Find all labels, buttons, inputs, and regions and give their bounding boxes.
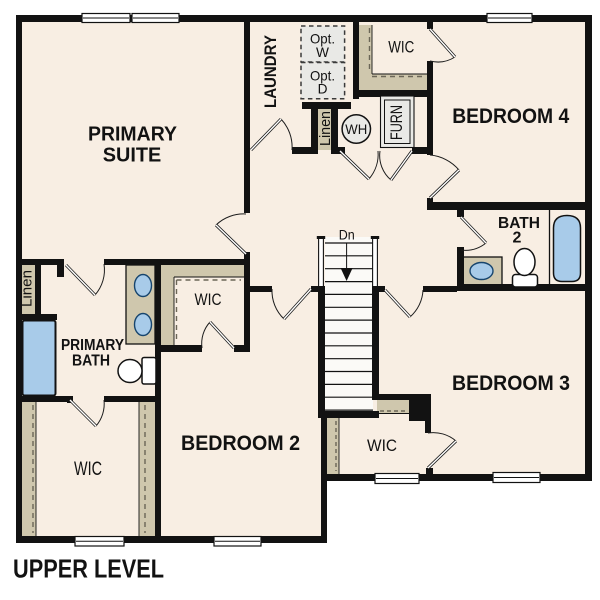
svg-text:WIC: WIC [195, 290, 222, 309]
svg-text:LAUNDRY: LAUNDRY [261, 34, 280, 108]
svg-text:UPPER LEVEL: UPPER LEVEL [13, 554, 164, 584]
svg-text:SUITE: SUITE [103, 145, 162, 167]
svg-text:BEDROOM 4: BEDROOM 4 [452, 105, 569, 128]
svg-text:Linen: Linen [317, 111, 334, 146]
svg-text:PRIMARY: PRIMARY [88, 124, 178, 146]
svg-text:WIC: WIC [74, 459, 102, 480]
svg-text:D: D [318, 82, 328, 97]
svg-text:2: 2 [513, 230, 522, 247]
svg-text:WH: WH [345, 122, 367, 137]
svg-text:PRIMARY: PRIMARY [61, 337, 124, 354]
svg-text:BEDROOM 3: BEDROOM 3 [452, 372, 570, 395]
svg-text:W: W [316, 45, 329, 60]
svg-text:Linen: Linen [19, 270, 36, 307]
svg-text:BATH: BATH [72, 353, 110, 370]
svg-text:BEDROOM 2: BEDROOM 2 [181, 432, 300, 455]
svg-text:WIC: WIC [388, 39, 414, 57]
svg-text:WIC: WIC [367, 437, 397, 455]
svg-text:Dn: Dn [339, 228, 355, 244]
svg-text:FURN: FURN [387, 105, 406, 140]
